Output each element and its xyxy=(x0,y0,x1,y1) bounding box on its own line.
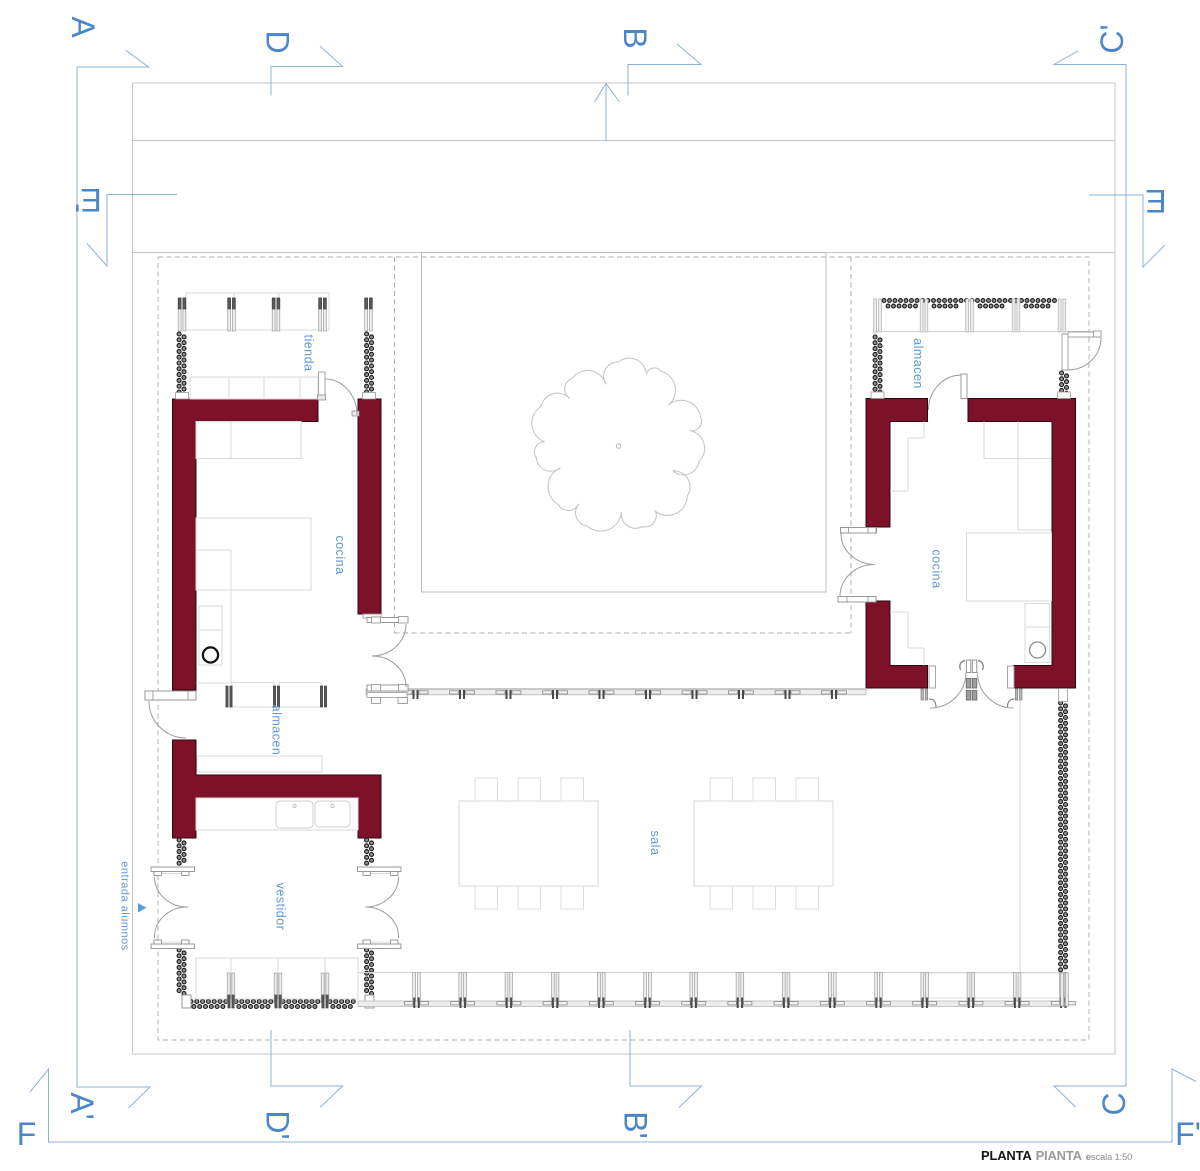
svg-text:E': E' xyxy=(74,182,101,218)
svg-text:D: D xyxy=(260,30,296,53)
svg-text:A: A xyxy=(65,16,101,38)
svg-text:A': A' xyxy=(64,1092,100,1119)
svg-text:B: B xyxy=(617,27,653,48)
svg-text:cocina: cocina xyxy=(930,549,944,588)
svg-text:E: E xyxy=(1145,183,1166,219)
svg-text:entrada alumnos: entrada alumnos xyxy=(119,861,131,950)
svg-text:vestidor: vestidor xyxy=(274,883,288,931)
svg-text:F: F xyxy=(17,1116,37,1152)
svg-text:sala: sala xyxy=(648,831,662,856)
svg-text:F': F' xyxy=(1175,1116,1200,1152)
svg-text:B': B' xyxy=(618,1111,654,1138)
svg-text:D': D' xyxy=(260,1110,296,1139)
svg-text:C: C xyxy=(1096,1092,1132,1115)
svg-text:almacen: almacen xyxy=(911,338,925,389)
svg-text:tienda: tienda xyxy=(302,334,316,371)
svg-text:almacen: almacen xyxy=(270,705,284,756)
svg-text:cocina: cocina xyxy=(333,535,347,574)
svg-text:C': C' xyxy=(1094,24,1130,53)
